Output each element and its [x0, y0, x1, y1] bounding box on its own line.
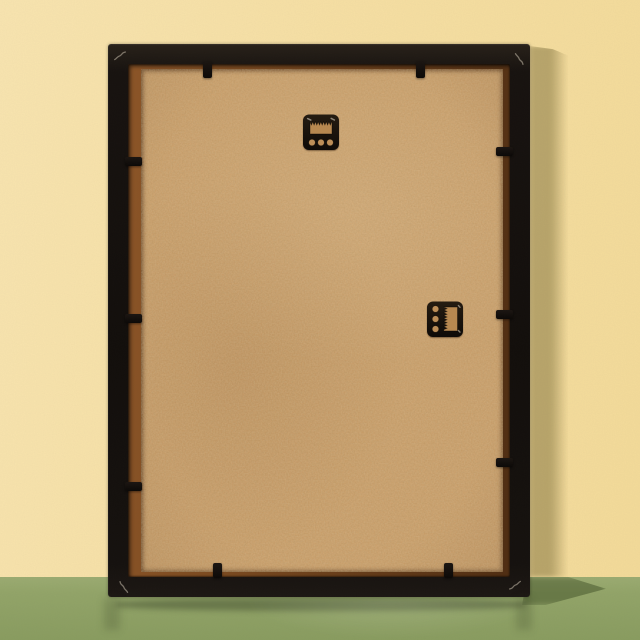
frame-edge-reflection	[104, 598, 120, 630]
scene	[0, 0, 640, 640]
sawtooth-hanger-top-icon	[302, 113, 340, 151]
retainer-tab-left	[125, 314, 142, 323]
retainer-tab-right	[496, 147, 513, 156]
retainer-tab-top	[203, 61, 212, 78]
corner-v-nail	[507, 577, 522, 592]
sawtooth-hanger-side-icon	[426, 300, 464, 338]
retainer-tab-right	[496, 310, 513, 319]
corner-v-nail	[116, 579, 131, 594]
retainer-tab-left	[125, 482, 142, 491]
frame-edge-reflection	[516, 598, 532, 630]
retainer-tab-right	[496, 458, 513, 467]
corner-v-nail	[511, 51, 526, 66]
retainer-tab-bottom	[444, 563, 453, 578]
corner-v-nail	[112, 48, 127, 63]
retainer-tab-bottom	[213, 563, 222, 578]
retainer-tabs-layer	[0, 0, 640, 640]
retainer-tab-top	[416, 61, 425, 78]
retainer-tab-left	[125, 157, 142, 166]
